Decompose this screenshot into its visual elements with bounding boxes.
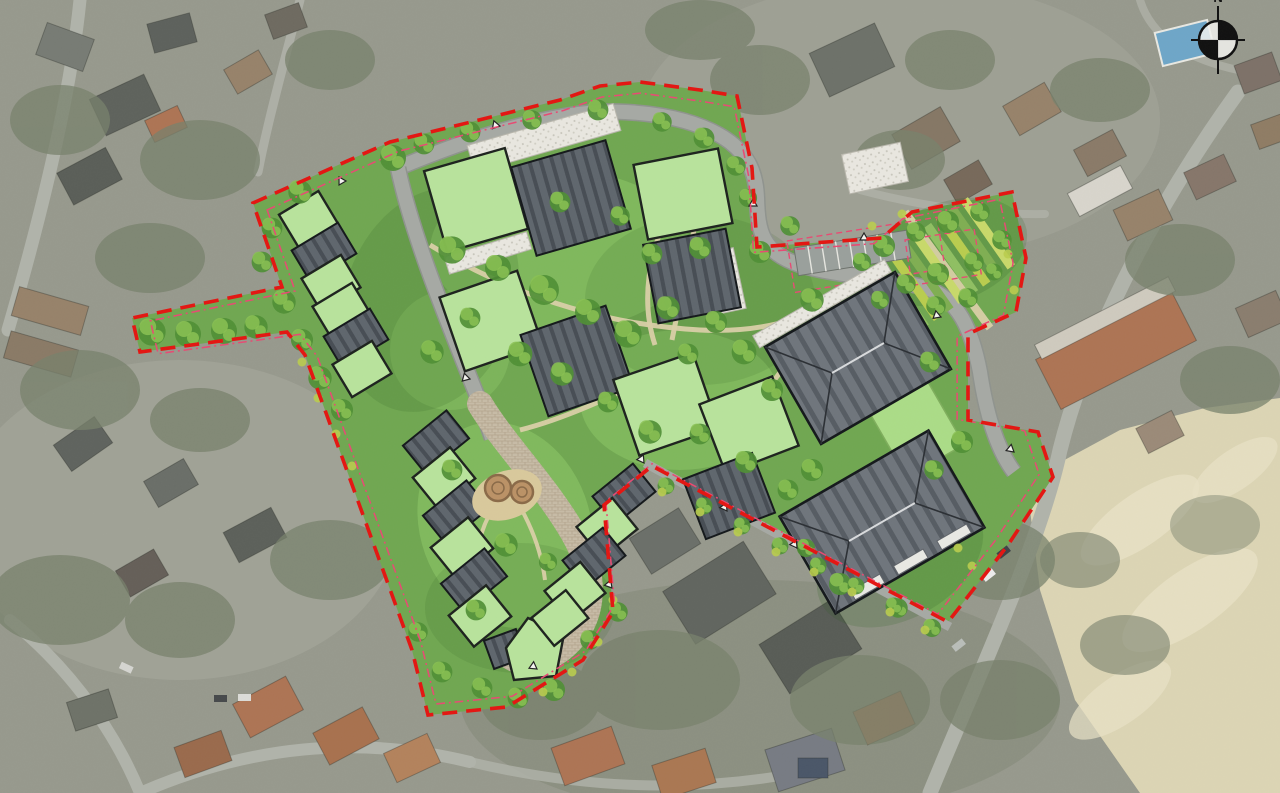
masterplan-aerial-view: N — [0, 0, 1280, 793]
site-plan-map: N — [0, 0, 1280, 793]
photo-grain-overlay — [0, 0, 1280, 793]
